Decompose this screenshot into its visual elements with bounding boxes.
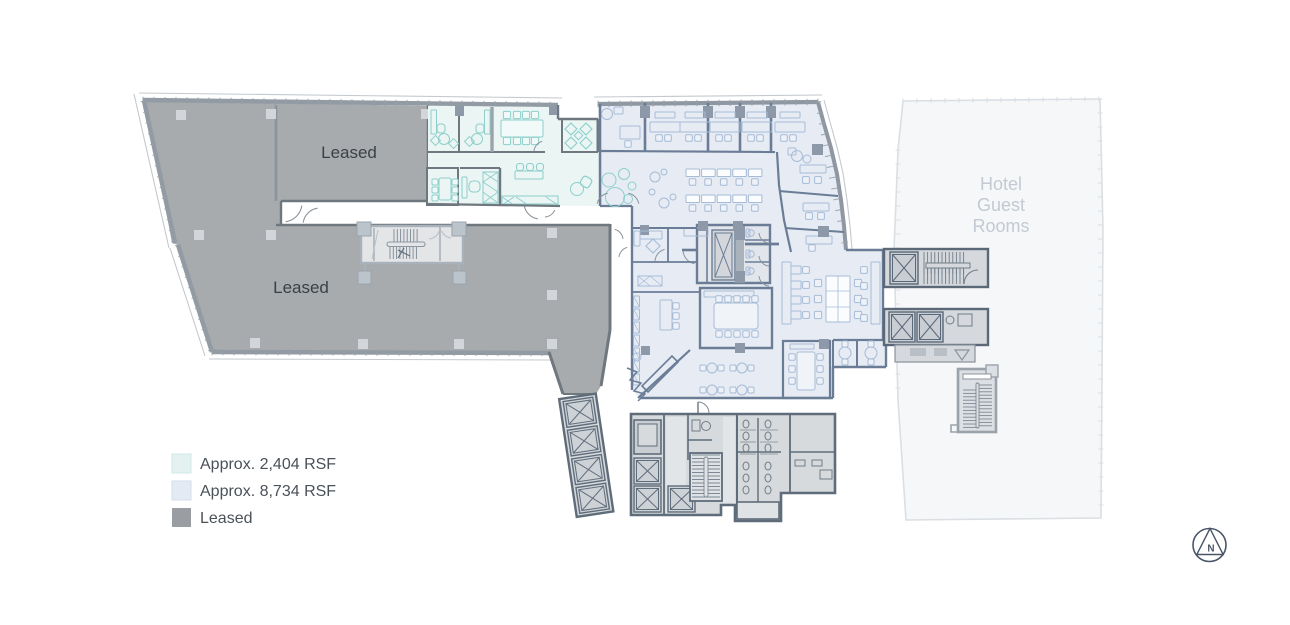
svg-text:N: N: [1207, 544, 1214, 555]
svg-text:Leased: Leased: [321, 143, 377, 162]
svg-text:Hotel: Hotel: [980, 174, 1022, 194]
svg-text:Rooms: Rooms: [972, 216, 1029, 236]
svg-text:Leased: Leased: [273, 278, 329, 297]
svg-text:Approx. 2,404 RSF: Approx. 2,404 RSF: [200, 456, 336, 473]
svg-text:Leased: Leased: [200, 510, 253, 527]
svg-text:Guest: Guest: [977, 195, 1025, 215]
svg-text:Approx. 8,734 RSF: Approx. 8,734 RSF: [200, 483, 336, 500]
